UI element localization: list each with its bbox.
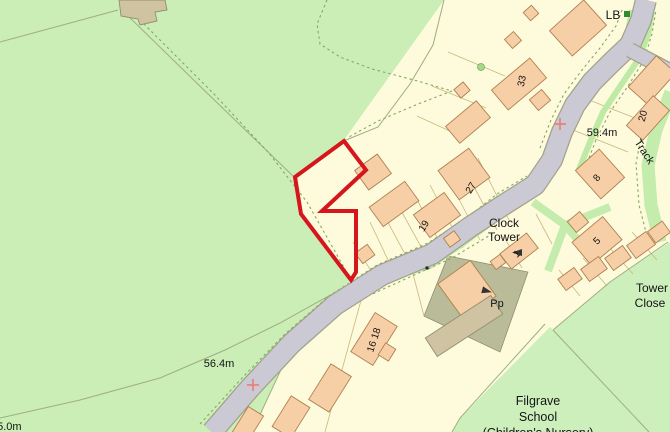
map-svg: LB 33 59.4m Track 20 8 Clock Tower 27 19… [0, 0, 670, 432]
label-tower-close-line1: Tower [636, 281, 668, 295]
label-lb: LB [606, 8, 621, 22]
label-clock-tower-line2: Tower [488, 230, 520, 244]
tree-icon [478, 64, 485, 71]
label-pp: Pp [490, 298, 503, 310]
label-school-line3: (Children's Nursery) [483, 426, 594, 432]
lb-marker-icon [624, 11, 630, 17]
label-school-line2: School [519, 410, 557, 424]
label-clock-tower-line1: Clock [489, 216, 520, 230]
spot-height-55-0: 55.0m [0, 421, 22, 432]
label-tower-close-line2: Close [635, 296, 666, 310]
spot-height-59-4: 59.4m [587, 127, 618, 139]
map-canvas: LB 33 59.4m Track 20 8 Clock Tower 27 19… [0, 0, 670, 432]
label-school-line1: Filgrave [516, 394, 561, 408]
benchmark-dot-icon [426, 267, 429, 270]
spot-height-56-4: 56.4m [204, 358, 235, 370]
